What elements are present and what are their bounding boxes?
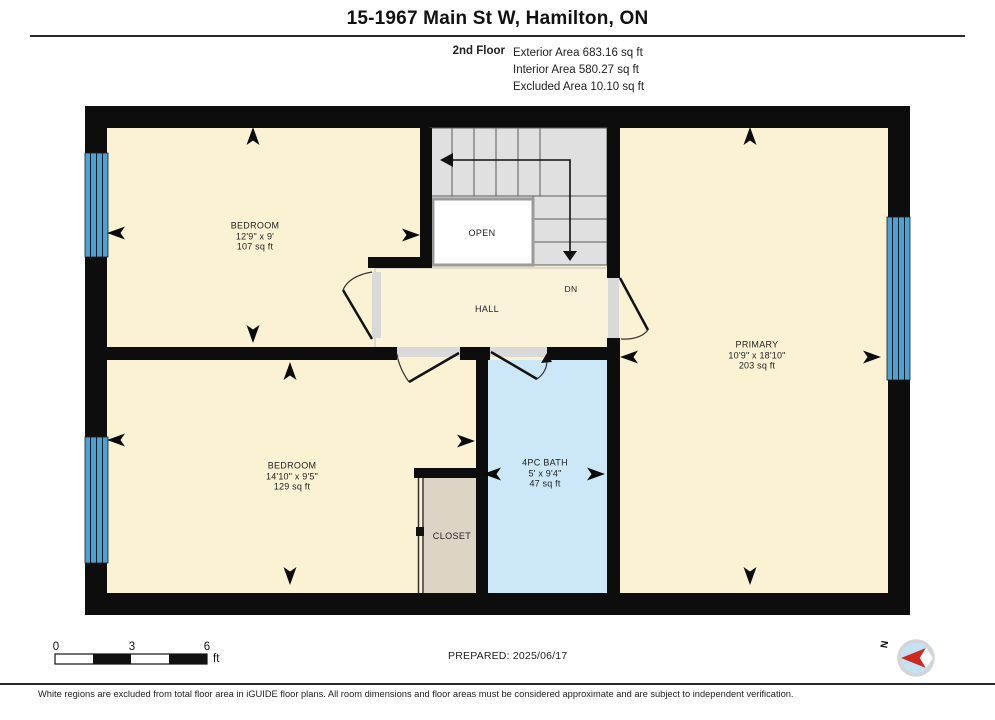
closet-door-handle: [416, 527, 424, 536]
scale-end-label: 6: [204, 641, 210, 653]
room-label-bath: 4PC BATH 5' x 9'4" 47 sq ft: [522, 457, 568, 489]
room-label-primary: PRIMARY 10'9" x 18'10" 203 sq ft: [728, 339, 785, 371]
scale-bar: [55, 654, 207, 664]
compass-icon: N: [879, 640, 933, 675]
room-label-open: OPEN: [468, 228, 495, 238]
disclaimer-text: White regions are excluded from total fl…: [38, 689, 968, 699]
room-label-bedroom-1: BEDROOM 12'9" x 9' 107 sq ft: [231, 220, 280, 252]
scale-mid-label: 3: [129, 641, 135, 653]
window-bottom-left-icon: [85, 437, 108, 563]
scale-start-label: 0: [53, 641, 59, 653]
room-label-hall: HALL: [475, 304, 499, 314]
room-label-bedroom-2: BEDROOM 14'10" x 9'5" 129 sq ft: [266, 460, 318, 492]
room-label-closet: CLOSET: [433, 531, 471, 541]
footer-divider: [0, 683, 995, 685]
floor-plan-drawing: N: [0, 0, 995, 720]
floor-plan-page: 15-1967 Main St W, Hamilton, ON 2nd Floo…: [0, 0, 995, 720]
north-label: N: [879, 640, 891, 649]
stairs-dn-label: DN: [564, 284, 577, 294]
scale-unit-label: ft: [213, 653, 219, 665]
window-right-icon: [887, 217, 910, 380]
window-top-left-icon: [85, 153, 108, 257]
prepared-date: PREPARED: 2025/06/17: [448, 650, 567, 662]
